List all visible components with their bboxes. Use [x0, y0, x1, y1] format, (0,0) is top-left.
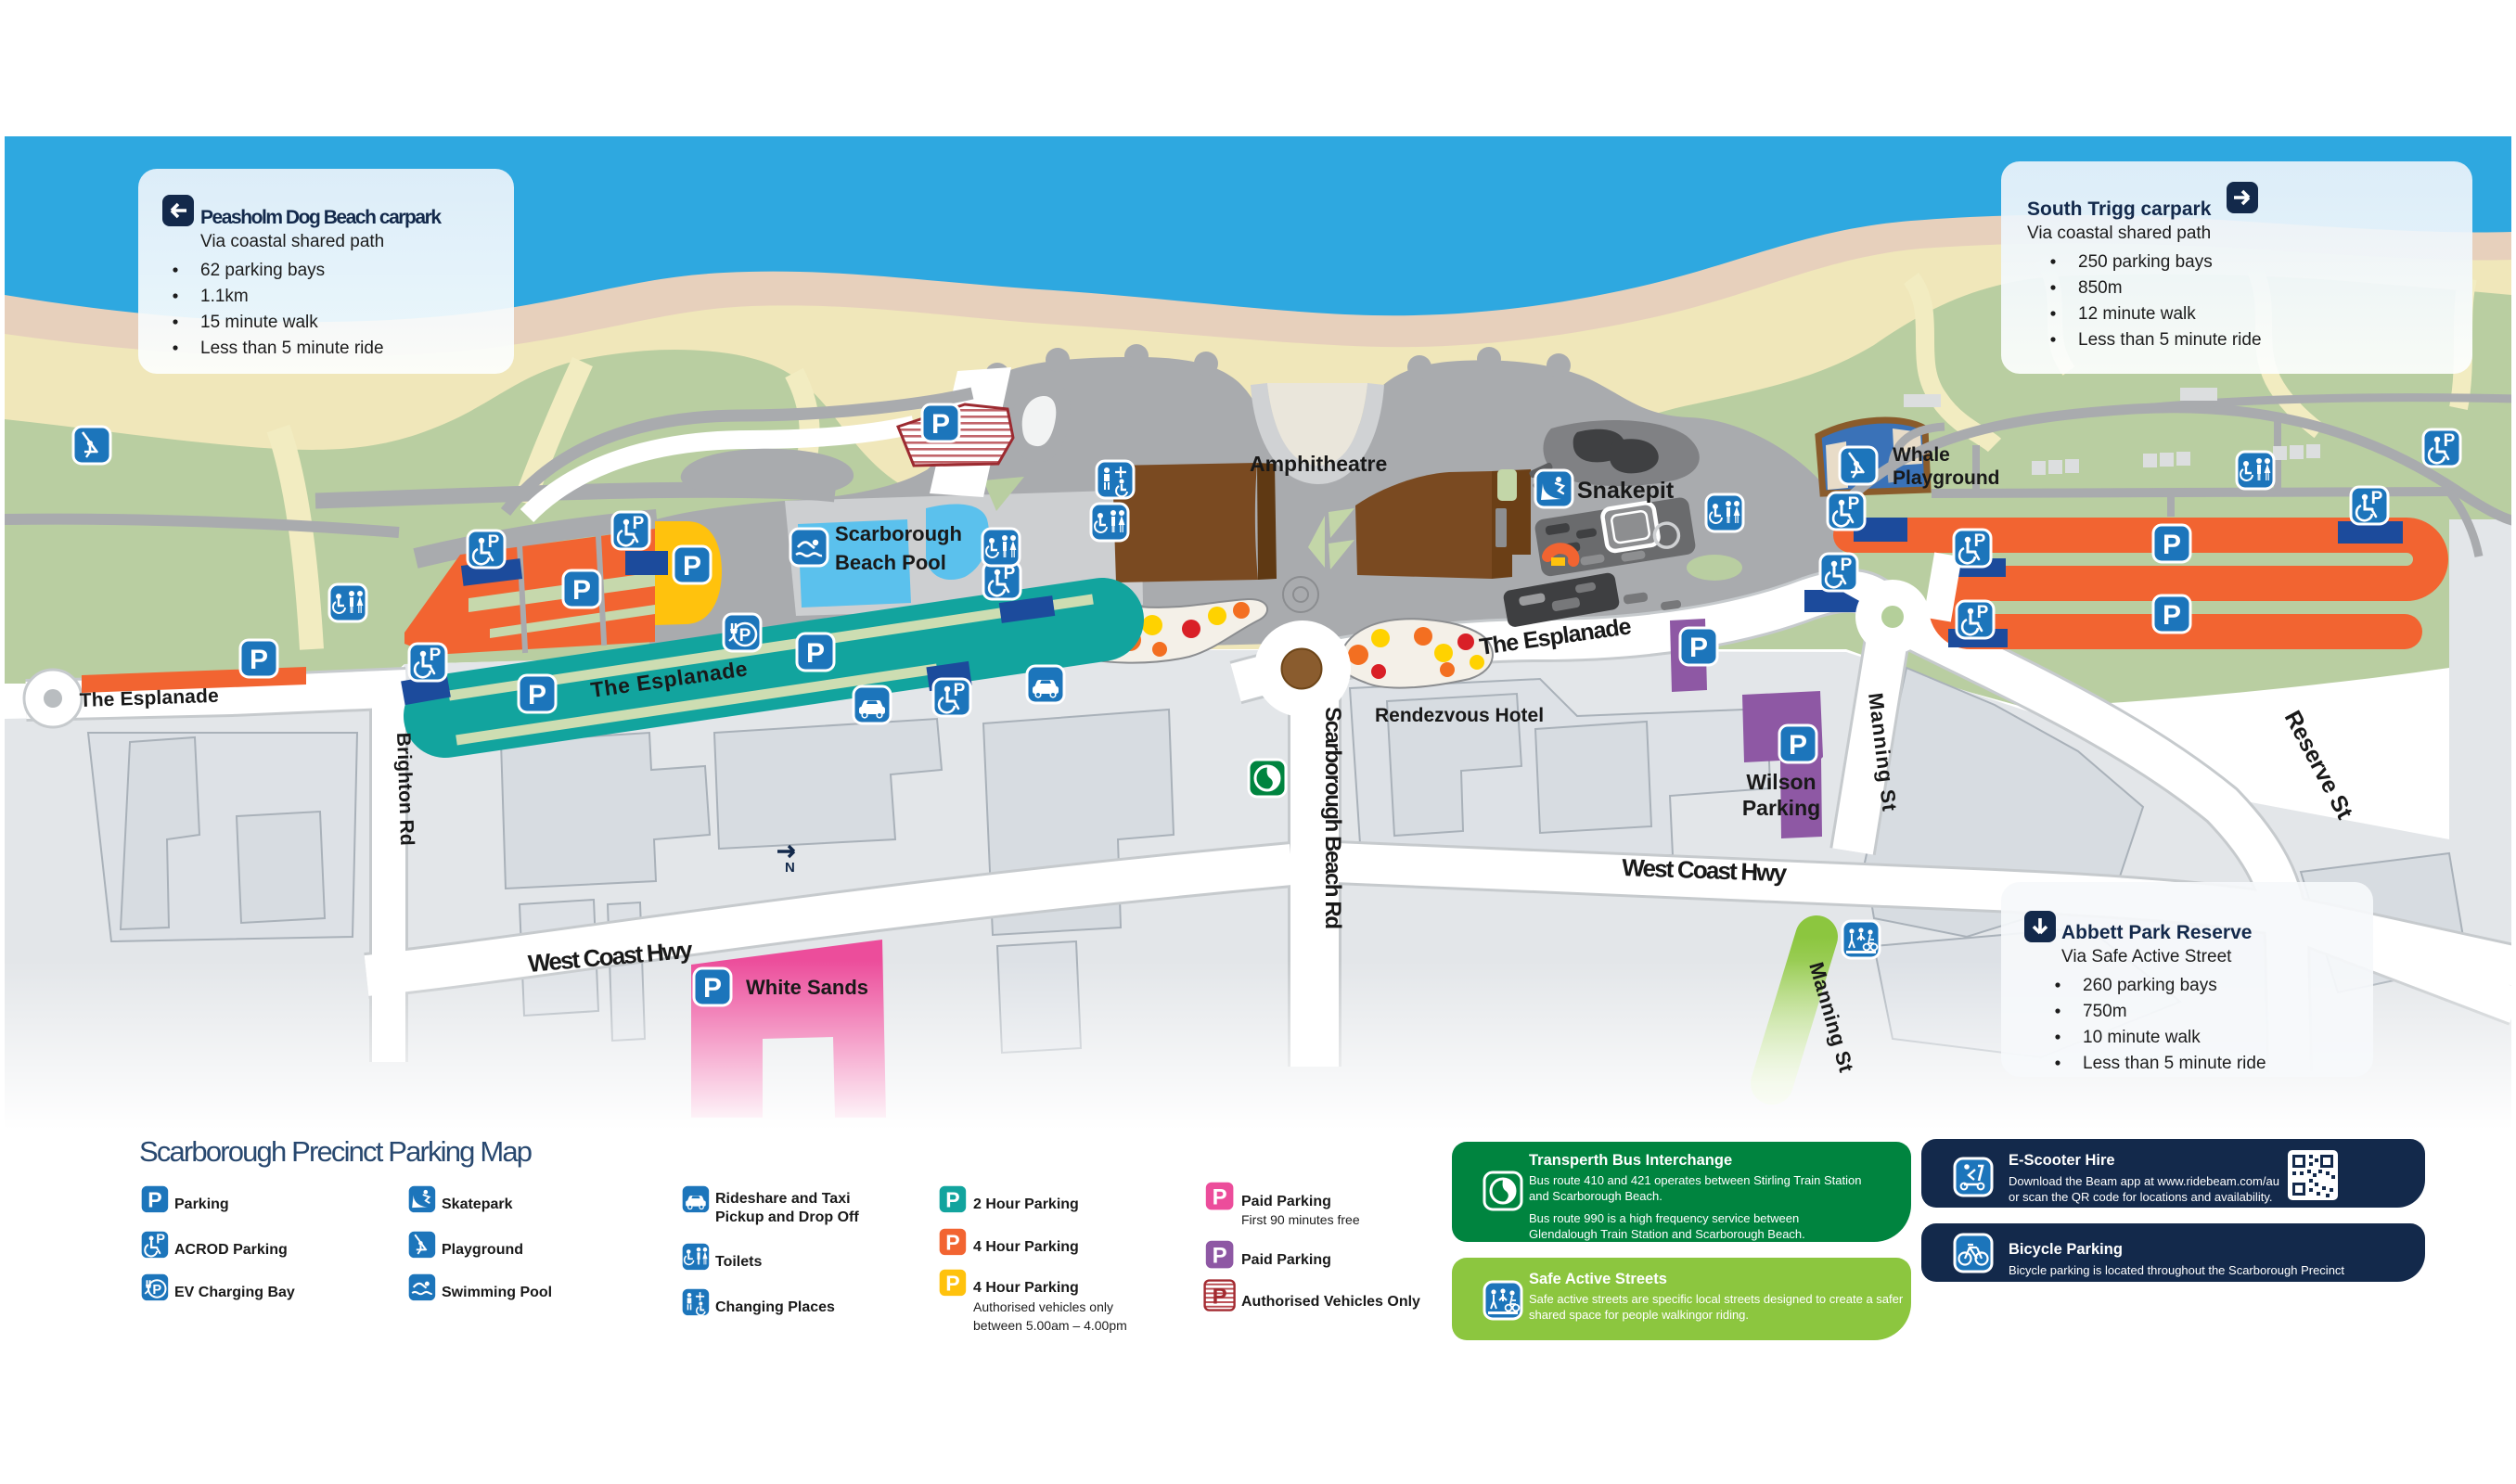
svg-text:Peasholm Dog Beach carpark: Peasholm Dog Beach carpark	[200, 207, 442, 228]
svg-text:Amphitheatre: Amphitheatre	[1250, 452, 1387, 476]
svg-text:and Scarborough Beach.: and Scarborough Beach.	[1529, 1189, 1662, 1203]
svg-text:2 Hour Parking: 2 Hour Parking	[973, 1196, 1079, 1212]
svg-text:P: P	[945, 1187, 959, 1211]
svg-text:P: P	[1213, 1284, 1227, 1309]
svg-text:Authorised vehicles only: Authorised vehicles only	[973, 1299, 1113, 1314]
svg-text:Skatepark: Skatepark	[442, 1196, 513, 1212]
svg-text:Bicycle parking is located thr: Bicycle parking is located throughout th…	[2009, 1263, 2344, 1277]
svg-text:Bus route 410 and 421 operates: Bus route 410 and 421 operates between S…	[1529, 1173, 1861, 1187]
svg-text:Brighton Rd: Brighton Rd	[392, 732, 417, 846]
svg-text:10 minute walk: 10 minute walk	[2083, 1028, 2201, 1047]
svg-text:Paid Parking: Paid Parking	[1241, 1194, 1331, 1209]
svg-text:Whale: Whale	[1893, 444, 1950, 466]
svg-text:E-Scooter Hire: E-Scooter Hire	[2009, 1152, 2115, 1169]
svg-text:4 Hour Parking: 4 Hour Parking	[973, 1239, 1079, 1255]
svg-text:P: P	[945, 1271, 959, 1295]
svg-text:1.1km: 1.1km	[200, 287, 249, 306]
svg-text:Less than 5 minute ride: Less than 5 minute ride	[2078, 330, 2262, 350]
svg-text:Parking: Parking	[1742, 796, 1820, 820]
svg-text:Scarborough Beach Rd: Scarborough Beach Rd	[1320, 707, 1345, 929]
svg-text:Abbett Park Reserve: Abbett Park Reserve	[2061, 922, 2252, 943]
svg-text:Scarborough: Scarborough	[835, 522, 962, 545]
svg-text:P: P	[1213, 1243, 1227, 1268]
svg-text:4 Hour Parking: 4 Hour Parking	[973, 1280, 1079, 1296]
svg-text:Authorised Vehicles Only: Authorised Vehicles Only	[1241, 1294, 1420, 1310]
svg-text:Via coastal shared path: Via coastal shared path	[200, 232, 384, 251]
svg-text:Reserve St: Reserve St	[2279, 707, 2358, 825]
svg-text:First 90 minutes free: First 90 minutes free	[1241, 1212, 1360, 1227]
svg-text:P: P	[1213, 1184, 1227, 1209]
svg-text:Pickup and Drop Off: Pickup and Drop Off	[715, 1209, 859, 1225]
svg-text:Paid Parking: Paid Parking	[1241, 1252, 1331, 1268]
svg-text:ACROD Parking: ACROD Parking	[174, 1242, 288, 1258]
svg-text:Download the Beam app at www.r: Download the Beam app at www.ridebeam.co…	[2009, 1174, 2279, 1188]
svg-text:Safe active streets are specif: Safe active streets are specific local s…	[1529, 1292, 1904, 1306]
svg-text:Playground: Playground	[442, 1242, 523, 1258]
svg-text:EV Charging Bay: EV Charging Bay	[174, 1285, 295, 1300]
svg-text:Rendezvous Hotel: Rendezvous Hotel	[1375, 705, 1544, 726]
svg-text:Less than 5 minute ride: Less than 5 minute ride	[200, 339, 384, 358]
svg-text:Less than 5 minute ride: Less than 5 minute ride	[2083, 1054, 2266, 1073]
svg-text:N: N	[785, 860, 795, 876]
svg-text:Wilson: Wilson	[1746, 770, 1816, 794]
svg-text:Safe Active Streets: Safe Active Streets	[1529, 1271, 1667, 1287]
svg-text:Via Safe Active Street: Via Safe Active Street	[2061, 947, 2232, 966]
svg-text:Glendalough Train Station and: Glendalough Train Station and Scarboroug…	[1529, 1227, 1805, 1241]
svg-text:Via coastal shared path: Via coastal shared path	[2027, 224, 2211, 243]
svg-text:South Trigg carpark: South Trigg carpark	[2027, 198, 2212, 220]
svg-text:Bus route 990 is a high freque: Bus route 990 is a high frequency servic…	[1529, 1211, 1799, 1225]
svg-text:850m: 850m	[2078, 278, 2123, 298]
svg-text:Rideshare and Taxi: Rideshare and Taxi	[715, 1191, 851, 1207]
svg-text:between 5.00am – 4.00pm: between 5.00am – 4.00pm	[973, 1318, 1127, 1333]
svg-text:750m: 750m	[2083, 1002, 2127, 1021]
svg-text:Beach Pool: Beach Pool	[835, 551, 946, 574]
svg-text:P: P	[945, 1230, 959, 1254]
svg-text:Playground: Playground	[1893, 467, 2000, 489]
svg-text:260 parking bays: 260 parking bays	[2083, 976, 2217, 995]
svg-text:Toilets: Toilets	[715, 1254, 762, 1270]
svg-text:62 parking bays: 62 parking bays	[200, 261, 325, 280]
svg-text:White Sands: White Sands	[746, 976, 868, 999]
svg-text:12 minute walk: 12 minute walk	[2078, 304, 2196, 324]
svg-text:Transperth Bus Interchange: Transperth Bus Interchange	[1529, 1152, 1732, 1169]
svg-text:West Coast Hwy: West Coast Hwy	[1622, 853, 1788, 887]
svg-text:or scan the QR code for locati: or scan the QR code for locations and av…	[2009, 1190, 2272, 1204]
svg-text:Changing Places: Changing Places	[715, 1299, 835, 1315]
svg-text:15 minute walk: 15 minute walk	[200, 313, 318, 332]
svg-text:shared space for people walkin: shared space for people walkingor riding…	[1529, 1308, 1749, 1322]
svg-text:Scarborough Precinct Parking M: Scarborough Precinct Parking Map	[139, 1135, 533, 1168]
svg-text:Parking: Parking	[174, 1196, 229, 1212]
svg-text:Bicycle Parking: Bicycle Parking	[2009, 1241, 2123, 1258]
svg-text:Swimming Pool: Swimming Pool	[442, 1285, 552, 1300]
svg-text:Snakepit: Snakepit	[1577, 478, 1675, 504]
svg-text:250 parking bays: 250 parking bays	[2078, 252, 2213, 272]
